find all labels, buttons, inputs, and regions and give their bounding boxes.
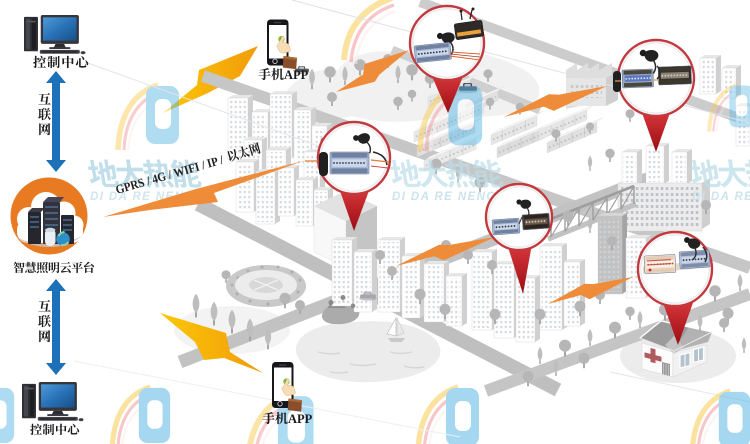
svg-text:APP: APP: [288, 412, 313, 426]
svg-text:DI DA RE: DI DA RE: [692, 191, 750, 203]
svg-text:APP: APP: [284, 68, 309, 82]
svg-text:DI DA RE NENG: DI DA RE NENG: [392, 191, 497, 203]
